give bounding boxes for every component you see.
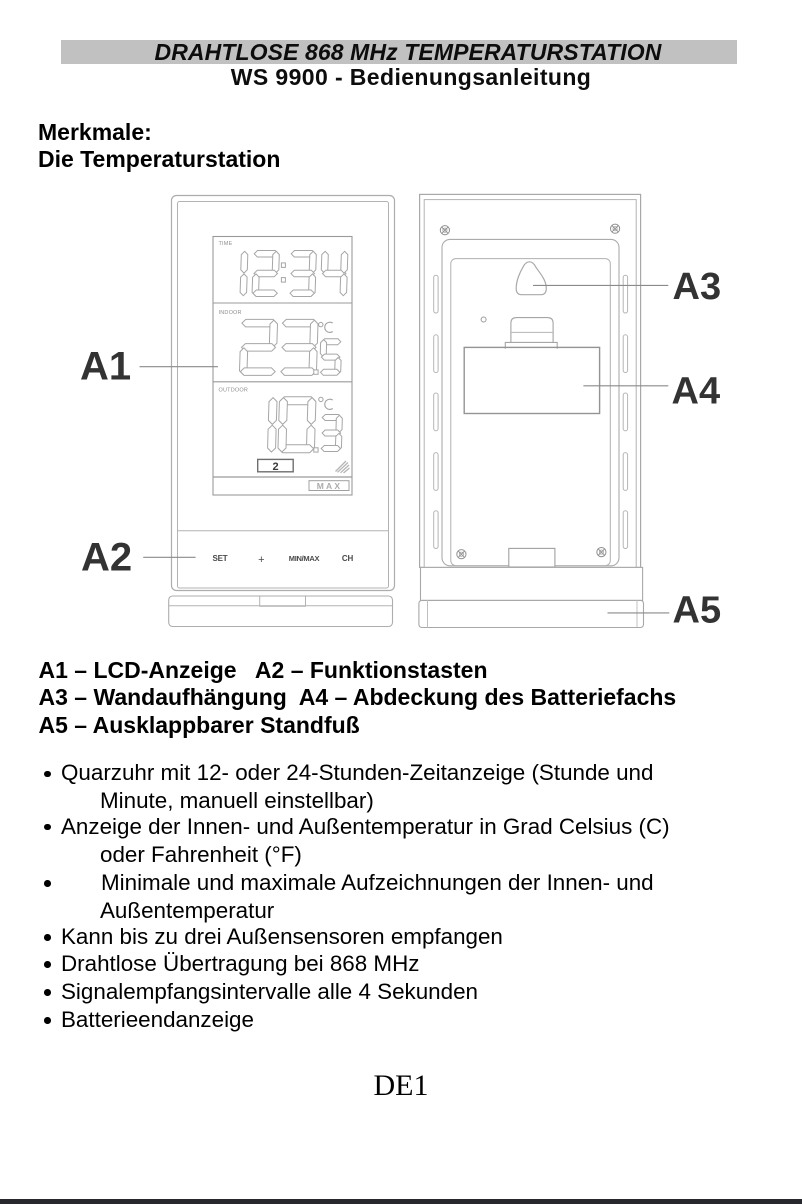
- svg-text:INDOOR: INDOOR: [219, 310, 242, 316]
- svg-text:A1: A1: [80, 345, 131, 389]
- svg-text:MIN/MAX: MIN/MAX: [289, 554, 320, 563]
- svg-text:A3: A3: [673, 266, 722, 308]
- svg-text:SET: SET: [213, 554, 228, 563]
- svg-text:CH: CH: [342, 554, 354, 563]
- svg-text:TIME: TIME: [219, 241, 233, 247]
- svg-text:A4: A4: [672, 370, 721, 412]
- svg-text:+: +: [258, 554, 264, 566]
- svg-text:2: 2: [272, 461, 278, 473]
- svg-text:A5: A5: [673, 589, 722, 631]
- svg-text:A2: A2: [81, 536, 132, 580]
- svg-text:OUTDOOR: OUTDOOR: [219, 388, 249, 394]
- svg-text:MAX: MAX: [317, 481, 343, 491]
